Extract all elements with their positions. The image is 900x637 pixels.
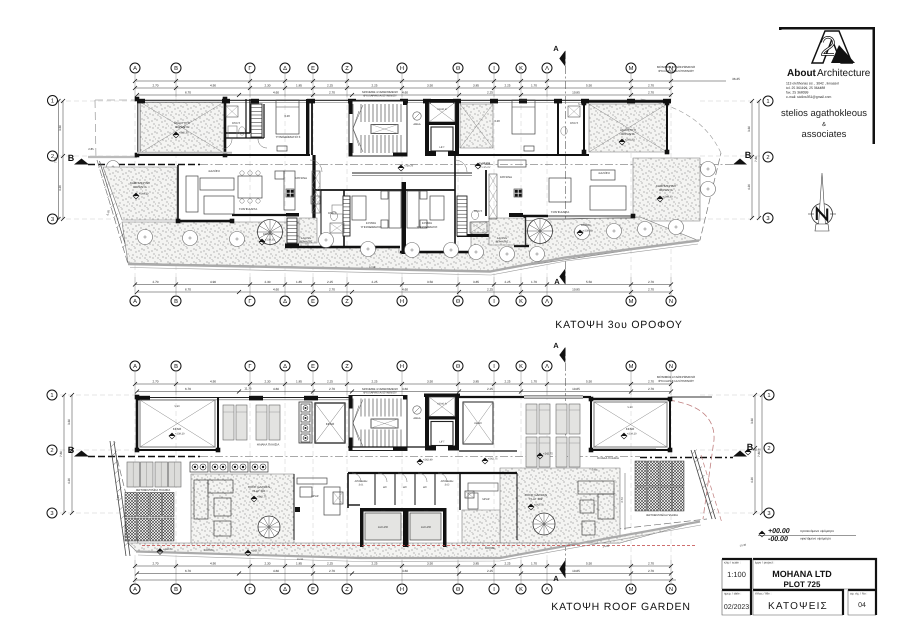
svg-text:4.20: 4.20 [67,478,71,484]
svg-text:7.80: 7.80 [54,157,58,163]
svg-text:Ν: Ν [669,587,673,593]
svg-text:ΚΟΥΖΙΝΑ: ΚΟΥΖΙΝΑ [500,175,512,179]
svg-text:4.60: 4.60 [273,288,279,292]
svg-text:1:100: 1:100 [727,570,746,579]
svg-text:5.40: 5.40 [578,102,584,106]
svg-text:ΝΤΟΥΖ: ΝΤΟΥΖ [570,122,579,125]
svg-text:4.90: 4.90 [210,280,216,284]
svg-text:E = 65 m²: E = 65 m² [479,166,490,169]
svg-text:ΚΗΠΟΣ: ΚΗΠΟΣ [263,232,273,236]
svg-text:1.70: 1.70 [531,562,537,566]
svg-text:2.70: 2.70 [648,288,654,292]
svg-text:ΑΜΕΑ: ΑΜΕΑ [413,417,421,420]
svg-text:-00.00: -00.00 [768,536,788,543]
svg-text:ΚΑΤΟΨΕΙΣ: ΚΑΤΟΨΕΙΣ [768,601,828,612]
svg-text:7.80: 7.80 [757,451,761,457]
svg-text:ΗΛΙΑΚΑ ΠΛΑΙΣΙΑ: ΗΛΙΑΚΑ ΠΛΑΙΣΙΑ [597,456,619,460]
svg-text:5.50: 5.50 [586,380,592,384]
svg-text:ΚΕΝΟ: ΚΕΝΟ [173,427,182,431]
svg-text:4.20: 4.20 [747,184,751,190]
svg-text:3.60: 3.60 [750,418,754,424]
svg-text:JACUZZI: JACUZZI [421,526,432,529]
svg-text:PLOT 725: PLOT 725 [784,580,821,589]
svg-text:Κ: Κ [519,364,523,370]
svg-text:B: B [68,153,75,163]
svg-text:7.80: 7.80 [754,156,758,162]
svg-text:WC: WC [423,486,427,489]
svg-text:Κ: Κ [519,299,523,305]
svg-text:ΒΕΡΑΝΤΑΣ: ΒΕΡΑΝΤΑΣ [300,241,313,244]
svg-text:7.80: 7.80 [59,451,63,457]
svg-text:2.70: 2.70 [648,562,654,566]
svg-text:2.25: 2.25 [504,562,510,566]
svg-text:4.60: 4.60 [402,288,408,292]
svg-text:ΒΕΡΑΝΤΑ: ΒΕΡΑΝΤΑ [659,188,673,192]
svg-text:2.70: 2.70 [329,387,335,391]
svg-text:1.85: 1.85 [296,84,302,88]
svg-text:ΝΤΟΥΖ: ΝΤΟΥΖ [474,210,483,213]
svg-text:4.90: 4.90 [210,84,216,88]
svg-text:ΒΕΡΑΝΤΑ: ΒΕΡΑΝΤΑ [133,185,147,189]
svg-text:+239.30: +239.30 [583,230,593,233]
svg-text:5.98: 5.98 [592,469,597,472]
svg-text:+242.49: +242.49 [423,459,433,462]
svg-text:2.25: 2.25 [371,562,377,566]
svg-text:3.85: 3.85 [473,280,479,284]
svg-text:3.85: 3.85 [473,562,479,566]
svg-text:LIFT: LIFT [439,146,445,149]
svg-text:+239.20: +239.20 [404,165,414,168]
svg-text:ΚΕΝΟ: ΚΕΝΟ [626,427,635,431]
svg-text:04: 04 [858,602,866,609]
svg-text:ΥΠΝΟΔΩΜΑΤΙΟ: ΥΠΝΟΔΩΜΑΤΙΟ [417,225,438,229]
svg-text:Β: Β [174,299,178,305]
svg-text:Ζ: Ζ [345,299,349,305]
svg-text:2: 2 [767,445,770,452]
svg-text:Μ: Μ [629,66,634,72]
svg-text:10.85: 10.85 [572,288,580,292]
svg-text:Μ: Μ [629,587,634,593]
svg-text:6.70: 6.70 [185,387,191,391]
svg-text:ΚΗΠΟΣ: ΚΗΠΟΣ [204,548,214,552]
svg-text:Λ: Λ [545,299,549,305]
svg-text:2.70: 2.70 [648,91,654,95]
svg-text:Η: Η [400,364,404,370]
svg-text:+00.00: +00.00 [768,528,790,535]
svg-text:ΦΩΤΟΒΟΛΤΑΪΚΑ ΠΛΑΙΣΙΑ: ΦΩΤΟΒΟΛΤΑΪΚΑ ΠΛΑΙΣΙΑ [136,488,170,492]
svg-text:10.85: 10.85 [572,569,580,573]
svg-text:ΚΕΝΟ: ΚΕΝΟ [474,422,481,425]
svg-text:2.30: 2.30 [264,562,270,566]
svg-text:6.70: 6.70 [185,569,191,573]
svg-text:B: B [745,150,752,160]
svg-text:2.90: 2.90 [381,510,386,513]
svg-text:associates: associates [802,129,847,140]
svg-text:2.70: 2.70 [152,84,158,88]
svg-text:3.60: 3.60 [67,419,71,425]
svg-text:Μ: Μ [629,364,634,370]
svg-text:Λ: Λ [545,364,549,370]
svg-text:2.25: 2.25 [487,288,493,292]
svg-text:Δ: Δ [283,364,287,370]
svg-text:ΝΤΟΥΖ: ΝΤΟΥΖ [328,212,337,215]
svg-text:2.25: 2.25 [371,380,377,384]
svg-text:36.35: 36.35 [732,77,740,81]
svg-text:Λ: Λ [545,587,549,593]
svg-text:3.20: 3.20 [284,114,290,118]
svg-text:5.30: 5.30 [627,406,633,409]
svg-text:Ε: Ε [311,364,315,370]
svg-text:ΑΜΕΑ: ΑΜΕΑ [413,123,421,126]
svg-text:FLAT 302: FLAT 302 [530,497,543,501]
svg-text:A: A [553,574,559,583]
svg-text:ΦΥΛΛΑΡΑΚΙ ΑΛΟΥΜΙΝΙΟΥ: ΦΥΛΛΑΡΑΚΙ ΑΛΟΥΜΙΝΙΟΥ [658,379,694,383]
svg-text:τίτλος / title :: τίτλος / title : [755,592,772,596]
svg-text:ΥΠΝΟΔΩΜΑΤΙΟ: ΥΠΝΟΔΩΜΑΤΙΟ [361,225,382,229]
svg-text:A: A [553,44,559,53]
svg-text:2.30: 2.30 [264,380,270,384]
svg-text:1.70: 1.70 [531,280,537,284]
svg-text:3: 3 [766,215,769,222]
svg-text:υφιστάμενο υψόμετρο: υφιστάμενο υψόμετρο [800,537,831,541]
svg-text:FLAT 301: FLAT 301 [479,162,491,165]
svg-text:+239.30: +239.30 [265,239,275,242]
svg-text:02/2023: 02/2023 [724,603,749,611]
svg-text:κλιμ / scale :: κλιμ / scale : [724,561,741,565]
svg-text:1: 1 [50,393,53,399]
svg-text:B: B [68,445,75,455]
svg-text:ΣΑΛΟΝΙ: ΣΑΛΟΝΙ [208,169,219,173]
svg-text:+242.75: +242.75 [257,496,267,499]
svg-text:3.50: 3.50 [427,84,433,88]
svg-text:Ζ: Ζ [345,66,349,72]
svg-text:Θ: Θ [456,586,461,593]
svg-text:2.25: 2.25 [371,84,377,88]
svg-text:2.70: 2.70 [152,380,158,384]
svg-text:2: 2 [766,154,769,161]
svg-text:2.70: 2.70 [648,569,654,573]
svg-text:+244.30: +244.30 [139,193,149,196]
svg-text:Η: Η [400,587,404,593]
svg-text:A: A [553,341,559,350]
svg-text:Η: Η [400,66,404,72]
svg-text:ΚΕΝΟ: ΚΕΝΟ [326,422,335,426]
svg-text:Θ: Θ [456,65,461,72]
svg-text:ΒΕΡΑΝΤΑ: ΒΕΡΑΝΤΑ [175,125,189,129]
svg-text:5.90: 5.90 [174,405,180,408]
svg-text:1: 1 [766,99,769,105]
svg-text:Ζ: Ζ [345,587,349,593]
svg-text:ημερ. / date :: ημερ. / date : [724,592,741,596]
svg-text:2.25: 2.25 [504,84,510,88]
svg-text:12.98: 12.98 [369,266,376,269]
svg-text:2.25: 2.25 [504,380,510,384]
svg-text:3.02: 3.02 [445,484,450,487]
svg-text:tel. 25 361199, 25 364488: tel. 25 361199, 25 364488 [786,86,825,90]
svg-text:1: 1 [767,393,770,399]
svg-text:Β: Β [174,66,178,72]
svg-text:2.30: 2.30 [264,280,270,284]
svg-text:ΚΕΝΟ R: ΚΕΝΟ R [437,403,446,406]
svg-text:ΤΡΑΠΕΖΑΡΙΑ: ΤΡΑΠΕΖΑΡΙΑ [239,207,257,211]
svg-text:ΚΑΤΟΨΗ ROOF GARDEN: ΚΑΤΟΨΗ ROOF GARDEN [551,601,690,613]
svg-text:3.50: 3.50 [427,280,433,284]
svg-text:ΚΗΠΟΣ: ΚΗΠΟΣ [485,546,495,550]
svg-text:2.25: 2.25 [327,280,333,284]
svg-text:stelios agathokleous: stelios agathokleous [781,108,867,119]
svg-text:3.73: 3.73 [620,497,624,503]
svg-text:+245.30: +245.30 [179,132,189,135]
svg-text:+242.75: +242.75 [543,453,553,456]
svg-text:Κ: Κ [519,587,523,593]
svg-text:2.85: 2.85 [88,147,94,151]
svg-text:+242.75: +242.75 [488,458,498,461]
svg-text:4.90: 4.90 [210,562,216,566]
svg-text:3.20: 3.20 [494,119,500,123]
svg-text:ΚΕΝΟ R: ΚΕΝΟ R [437,108,446,111]
svg-text:4.60: 4.60 [273,91,279,95]
svg-text:αρ. σχ. / No :: αρ. σχ. / No : [850,592,868,596]
svg-text:e-mail: stelios351@gmail.com: e-mail: stelios351@gmail.com [786,95,831,99]
svg-text:ΦΥΛΛΑΡΑΚΙ ΑΛΟΥΜΙΝΙΟΥ: ΦΥΛΛΑΡΑΚΙ ΑΛΟΥΜΙΝΙΟΥ [658,69,694,73]
svg-text:2.70: 2.70 [329,288,335,292]
svg-text:&: & [822,121,826,128]
svg-text:+242.60: +242.60 [751,449,761,452]
svg-text:ΜΠΑΡ: ΜΠΑΡ [311,495,319,498]
svg-text:1.70: 1.70 [531,84,537,88]
svg-text:3.01: 3.01 [359,484,364,487]
svg-text:Α: Α [133,587,137,593]
svg-text:5.50: 5.50 [586,562,592,566]
svg-text:Ν: Ν [669,364,673,370]
svg-text:2.25: 2.25 [327,562,333,566]
svg-text:+244.30: +244.30 [663,196,673,199]
svg-text:ΝΤΟΥΖ: ΝΤΟΥΖ [232,122,241,125]
svg-text:Ε: Ε [311,587,315,593]
svg-text:1.70: 1.70 [531,380,537,384]
svg-text:1: 1 [51,99,54,105]
svg-text:Θ: Θ [456,298,461,305]
svg-text:1.85: 1.85 [296,280,302,284]
svg-text:LIFT: LIFT [439,441,445,444]
svg-text:ΥΠΝΟΔΩΜΑΤΙΟ 3: ΥΠΝΟΔΩΜΑΤΙΟ 3 [276,135,301,139]
svg-text:ΣΑΛΟΝΙ: ΣΑΛΟΝΙ [598,171,609,175]
svg-text:ΚΟΥΖΙΝΑ: ΚΟΥΖΙΝΑ [295,176,307,180]
svg-text:έργο / project :: έργο / project : [755,561,775,565]
svg-text:4.60: 4.60 [273,387,279,391]
svg-text:Ν: Ν [669,299,673,305]
svg-text:Η: Η [400,299,404,305]
svg-text:2.90: 2.90 [424,510,429,513]
svg-text:11.75: 11.75 [244,387,252,391]
svg-text:Architecture: Architecture [817,68,871,79]
svg-text:+239.20: +239.20 [627,433,637,436]
svg-text:2.70: 2.70 [329,569,335,573]
svg-text:2: 2 [50,447,53,454]
svg-text:Ε: Ε [311,66,315,72]
svg-text:3: 3 [51,216,54,223]
svg-text:3.50: 3.50 [427,562,433,566]
svg-text:2.70: 2.70 [648,84,654,88]
svg-text:3.60: 3.60 [747,126,751,132]
svg-text:Κ: Κ [519,66,523,72]
svg-text:+242.79: +242.79 [163,548,173,551]
svg-text:6.70: 6.70 [185,91,191,95]
svg-text:4.60: 4.60 [402,387,408,391]
svg-text:4.60: 4.60 [273,569,279,573]
svg-text:fax. 25 368099: fax. 25 368099 [786,91,809,95]
svg-text:2.25: 2.25 [371,280,377,284]
svg-text:ΦΥΛΛΑΡΑΚΙ ΑΛΟΥΜΙΝΙΟΥ: ΦΥΛΛΑΡΑΚΙ ΑΛΟΥΜΙΝΙΟΥ [363,391,397,395]
svg-text:About: About [787,68,817,79]
svg-text:4.60: 4.60 [402,91,408,95]
svg-text:2.30: 2.30 [264,84,270,88]
svg-text:Ζ: Ζ [345,364,349,370]
svg-text:MOHANA LTD: MOHANA LTD [772,569,832,579]
svg-text:ΚΑΤΟΨΗ 3ου ΟΡΟΦΟΥ: ΚΑΤΟΨΗ 3ου ΟΡΟΦΟΥ [555,319,682,331]
svg-text:4.90: 4.90 [210,380,216,384]
svg-text:4.60: 4.60 [402,569,408,573]
svg-text:3.85: 3.85 [473,84,479,88]
svg-text:2.70: 2.70 [648,280,654,284]
svg-text:2.25: 2.25 [487,91,493,95]
svg-text:ΦΩΤΟΒΟΛΤΑΪΚΑ ΠΛΑΙΣΙΑ: ΦΩΤΟΒΟΛΤΑΪΚΑ ΠΛΑΙΣΙΑ [646,513,678,517]
svg-text:Β: Β [174,587,178,593]
svg-text:WC: WC [383,486,387,489]
svg-text:Μ: Μ [629,299,634,305]
svg-text:FLAT 304: FLAT 304 [253,489,266,493]
svg-text:Θ: Θ [456,363,461,370]
svg-text:+239.20: +239.20 [175,433,185,436]
svg-text:2.25: 2.25 [327,380,333,384]
svg-text:4.20: 4.20 [750,477,754,483]
svg-text:ΤΡΑΠΕΖΑΡΙΑ: ΤΡΑΠΕΖΑΡΙΑ [551,210,569,214]
svg-text:Δ: Δ [283,587,287,593]
svg-text:2.70: 2.70 [152,280,158,284]
svg-text:+245.30: +245.30 [625,139,635,142]
svg-text:3: 3 [50,510,53,517]
svg-text:5.50: 5.50 [586,280,592,284]
svg-text:προτεινόμενο υψόμετρο: προτεινόμενο υψόμετρο [800,529,834,533]
svg-text:2.70: 2.70 [329,91,335,95]
svg-text:10.85: 10.85 [572,387,580,391]
svg-text:1.85: 1.85 [296,562,302,566]
svg-text:6.70: 6.70 [185,288,191,292]
svg-text:Α: Α [133,364,137,370]
svg-text:3: 3 [767,510,770,517]
svg-text:2.70: 2.70 [152,562,158,566]
svg-text:2.70: 2.70 [648,380,654,384]
svg-text:ΒΕΡΑΝΤΑΣ: ΒΕΡΑΝΤΑΣ [496,241,509,244]
svg-text:JACUZZI: JACUZZI [378,526,389,529]
svg-text:ΚΗΠΟΣ: ΚΗΠΟΣ [581,223,591,227]
svg-text:2.70: 2.70 [648,387,654,391]
svg-text:2.25: 2.25 [327,84,333,88]
svg-text:Δ: Δ [283,299,287,305]
svg-text:5.50: 5.50 [586,84,592,88]
svg-text:10.85: 10.85 [572,91,580,95]
svg-text:113 eleftherias str. , 3042 ,: 113 eleftherias str. , 3042 , limassol [786,82,839,86]
svg-text:2.25: 2.25 [504,280,510,284]
svg-text:3.50: 3.50 [427,380,433,384]
svg-text:WC: WC [403,486,407,489]
svg-text:3.85: 3.85 [473,380,479,384]
svg-text:Α: Α [133,66,137,72]
svg-text:2.25: 2.25 [487,569,493,573]
svg-text:ΜΠΑΡ: ΜΠΑΡ [482,498,490,501]
svg-text:1.85: 1.85 [296,380,302,384]
svg-text:+242.75: +242.75 [534,504,544,507]
svg-text:+242.79: +242.79 [251,550,261,553]
svg-text:Δ: Δ [283,66,287,72]
svg-text:Λ: Λ [545,66,549,72]
svg-text:16.96: 16.96 [297,558,304,561]
svg-text:Ε: Ε [311,299,315,305]
svg-text:Α: Α [133,299,137,305]
svg-text:A: A [554,277,560,286]
svg-text:ΗΛΙΑΚΑ ΠΛΑΙΣΙΑ: ΗΛΙΑΚΑ ΠΛΑΙΣΙΑ [257,443,280,447]
svg-text:Β: Β [174,364,178,370]
svg-text:ΦΥΛΛΑΡΑΚΙ ΑΛΟΥΜΙΝΙΟΥ: ΦΥΛΛΑΡΑΚΙ ΑΛΟΥΜΙΝΙΟΥ [363,94,397,98]
svg-text:ΒΕΡΑΝΤΑ: ΒΕΡΑΝΤΑ [621,132,635,136]
svg-text:2.25: 2.25 [487,387,493,391]
